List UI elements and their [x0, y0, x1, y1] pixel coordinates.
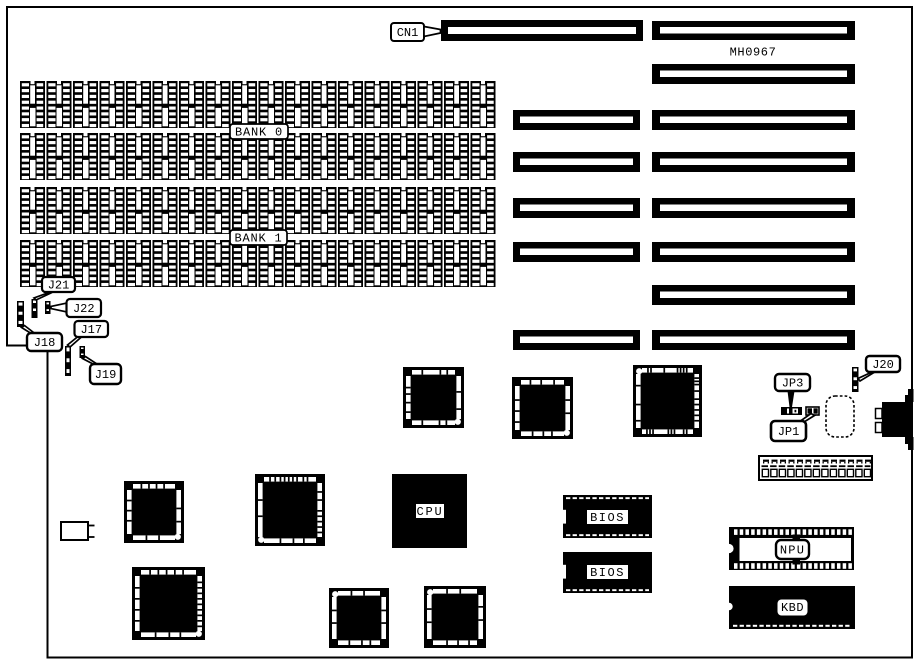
svg-text:J17: J17 — [80, 323, 102, 337]
svg-text:JP3: JP3 — [782, 377, 804, 391]
svg-text:KBD: KBD — [781, 601, 804, 615]
svg-text:CPU: CPU — [416, 505, 443, 519]
svg-text:BANK 0: BANK 0 — [235, 126, 283, 140]
svg-text:NPU: NPU — [780, 544, 805, 558]
svg-text:J20: J20 — [872, 358, 894, 372]
svg-text:BANK 1: BANK 1 — [234, 232, 282, 246]
svg-text:BIOS: BIOS — [590, 511, 625, 525]
svg-text:BIOS: BIOS — [590, 566, 625, 580]
svg-text:J21: J21 — [48, 279, 70, 293]
svg-text:J18: J18 — [34, 336, 56, 350]
svg-text:CN1: CN1 — [397, 26, 419, 40]
svg-text:MH0967: MH0967 — [730, 46, 777, 60]
svg-text:J22: J22 — [73, 302, 95, 316]
svg-text:J19: J19 — [95, 368, 117, 382]
svg-text:JP1: JP1 — [778, 425, 800, 439]
